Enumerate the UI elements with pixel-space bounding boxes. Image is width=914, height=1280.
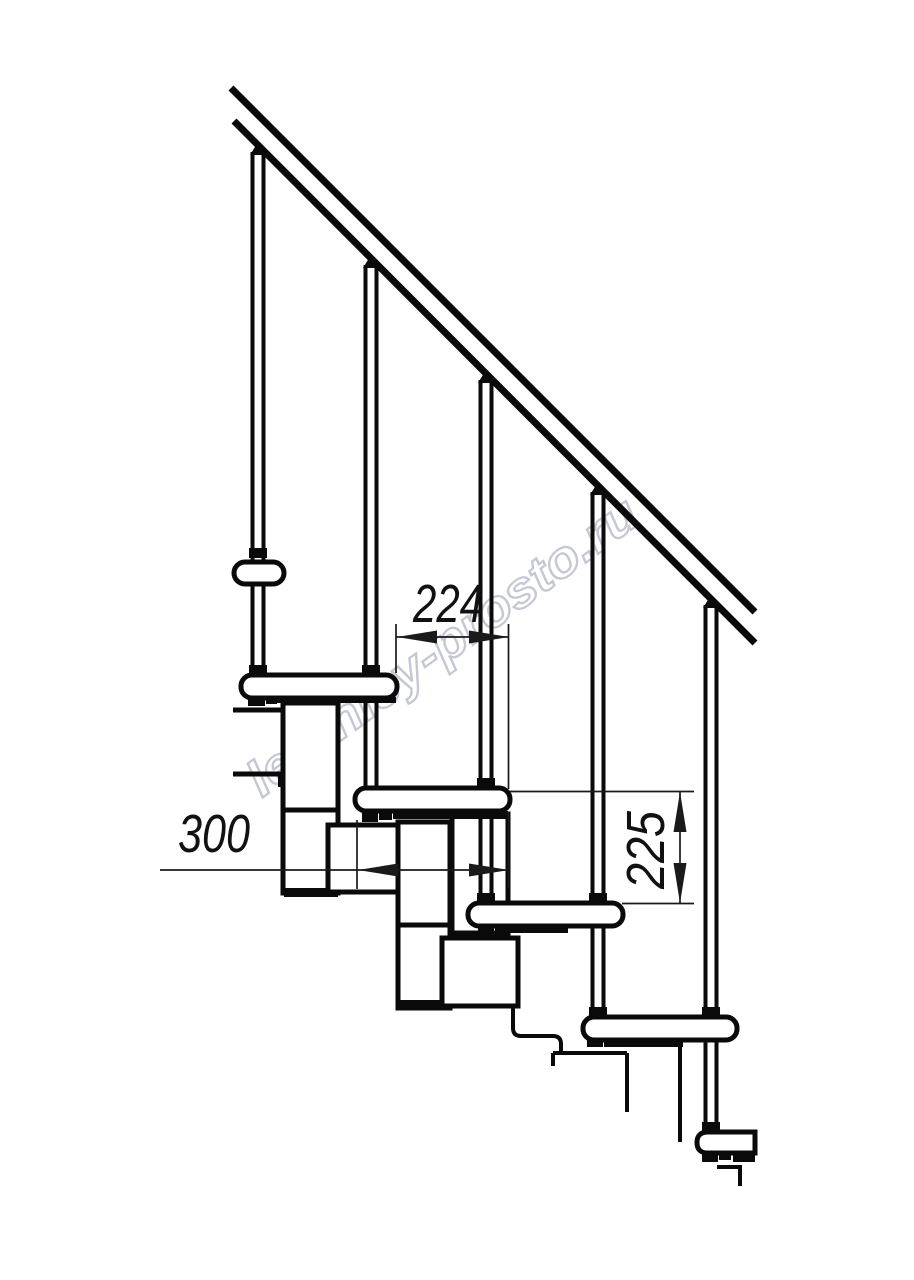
tread-3-bar — [508, 927, 568, 933]
dimension-going-label: 224 — [412, 574, 483, 634]
baluster-1 — [253, 152, 264, 675]
support-modules — [233, 703, 740, 1186]
tread-5-bar — [733, 1154, 755, 1162]
tread-1-bar — [277, 697, 396, 703]
staircase-technical-drawing: lestnicy-prosto.ru — [0, 0, 914, 1280]
tread-4 — [583, 1017, 737, 1040]
tread-2-bar — [393, 811, 508, 819]
fittings — [248, 146, 755, 1162]
baluster-4 — [593, 492, 604, 1010]
tread-5-cut — [697, 1132, 755, 1153]
tread-1 — [241, 675, 397, 698]
baluster-5 — [706, 605, 717, 1125]
module-5-partial — [717, 1167, 740, 1186]
wall-bracket — [234, 562, 284, 584]
handrail-bottom-line — [234, 121, 755, 643]
tread-2 — [355, 788, 510, 811]
dimension-tread-depth-label: 300 — [178, 804, 250, 864]
tread-4-bar — [616, 1041, 683, 1047]
dimension-rise-label: 225 — [616, 810, 676, 890]
tread-3 — [468, 903, 623, 926]
staircase-drawing-page: lestnicy-prosto.ru — [0, 0, 914, 1280]
